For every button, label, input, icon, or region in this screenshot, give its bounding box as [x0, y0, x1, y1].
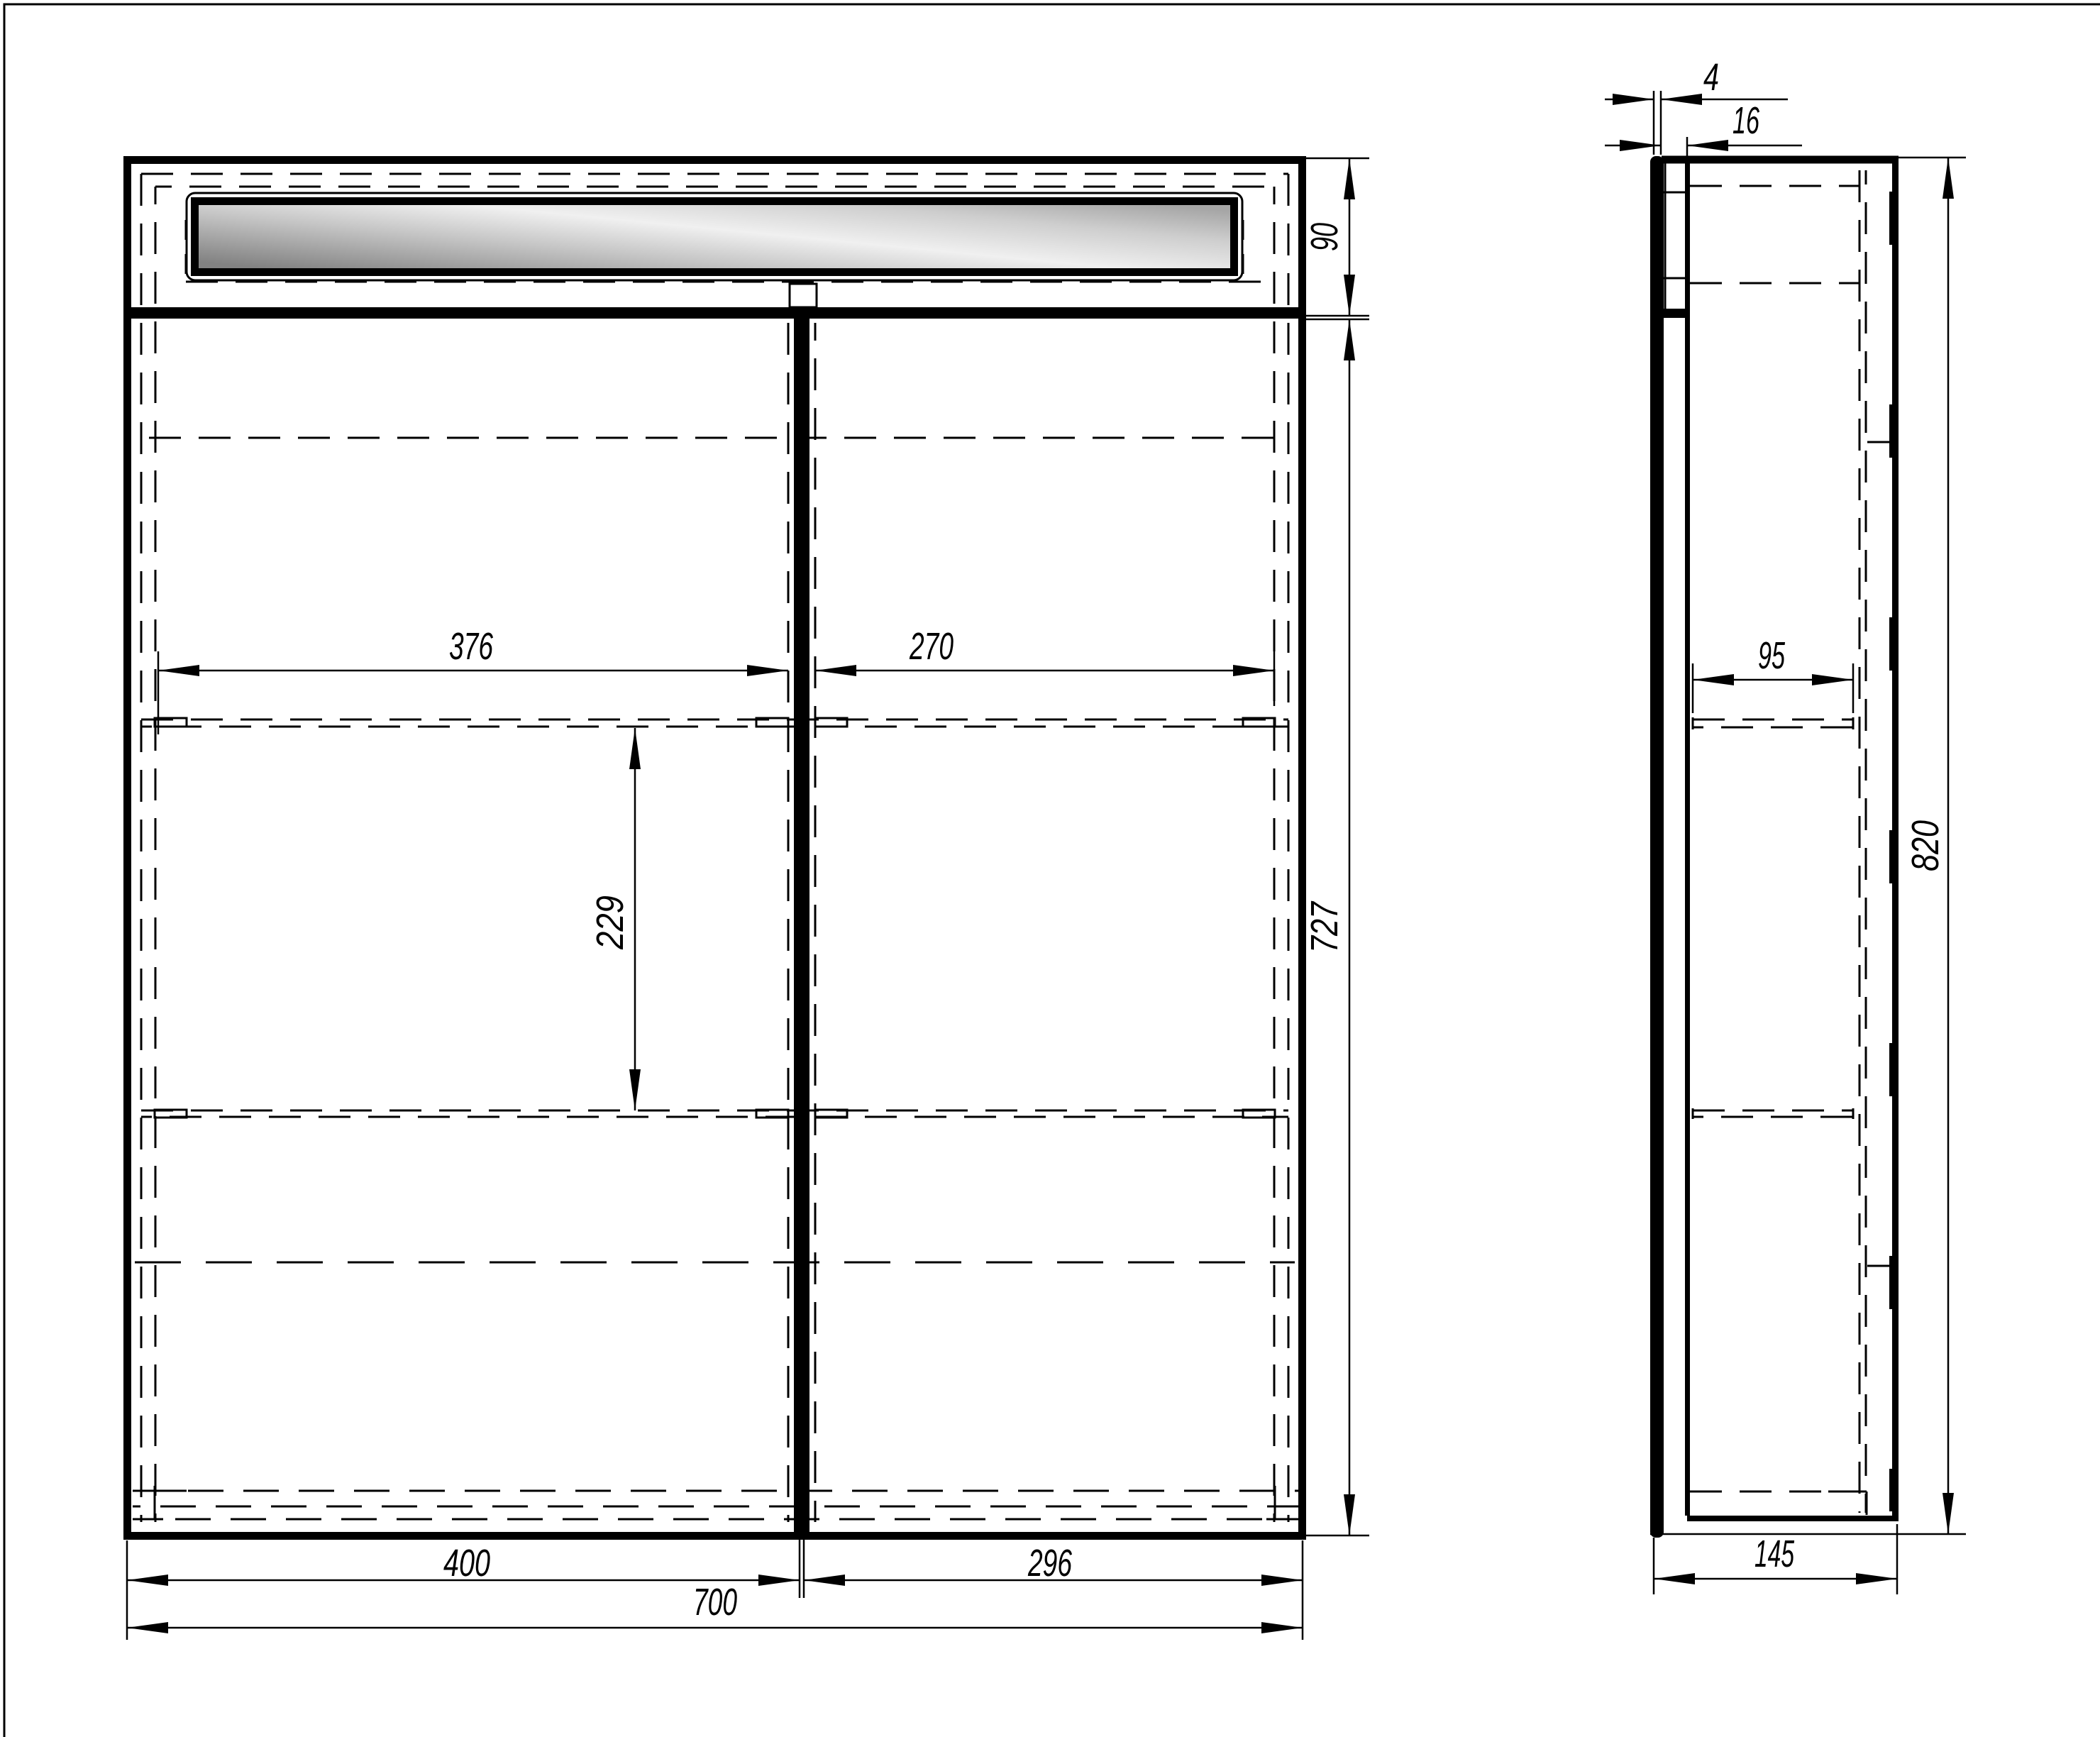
svg-text:229: 229: [589, 895, 631, 950]
svg-text:4: 4: [1703, 56, 1719, 99]
svg-text:700: 700: [693, 1581, 737, 1623]
svg-text:376: 376: [449, 625, 494, 668]
svg-text:16: 16: [1732, 99, 1760, 142]
svg-text:270: 270: [909, 625, 954, 668]
svg-text:145: 145: [1754, 1533, 1795, 1575]
svg-text:296: 296: [1027, 1542, 1072, 1584]
svg-text:727: 727: [1303, 900, 1346, 953]
svg-text:400: 400: [443, 1542, 490, 1584]
svg-text:95: 95: [1758, 634, 1786, 677]
svg-text:90: 90: [1303, 223, 1346, 251]
svg-text:820: 820: [1904, 820, 1947, 871]
